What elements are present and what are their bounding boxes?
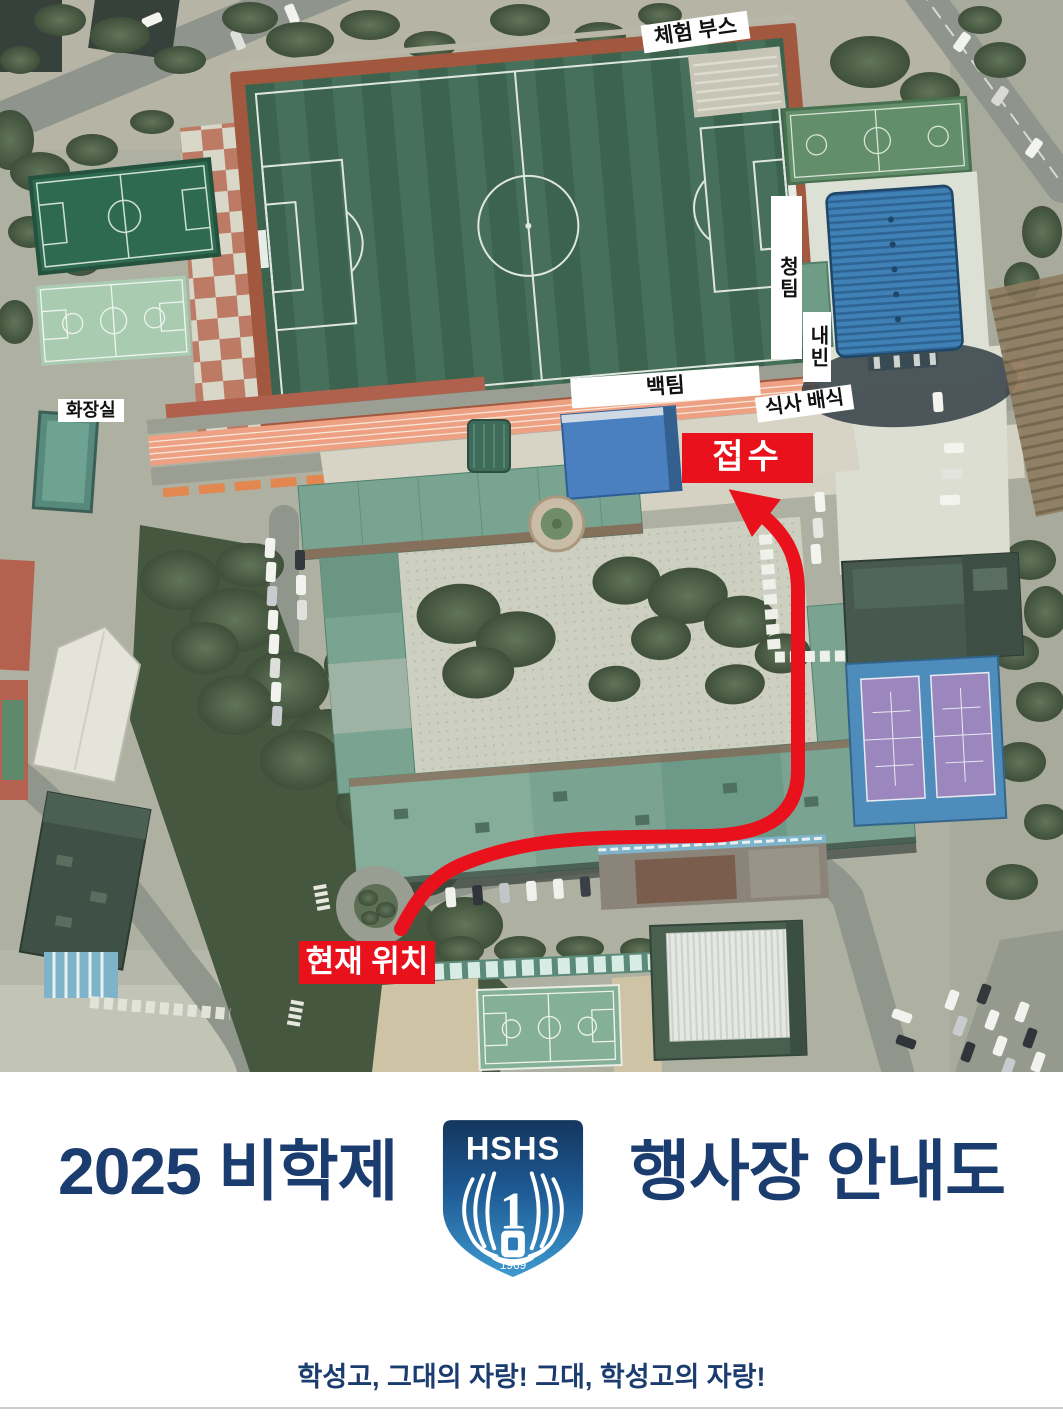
logo-founding-year: 1969: [500, 1258, 527, 1272]
red-track-left: [0, 559, 35, 671]
title-venue-guide: 행사장 안내도: [629, 1138, 1005, 1204]
campus-aerial-map: 체험 부스 청팀 내빈 백팀 식사 배식 접수 현재 위치 화장실: [0, 0, 1063, 1072]
sand-ground: [372, 978, 482, 1072]
futsal-court-small: [30, 159, 219, 273]
water-tank: [468, 420, 510, 472]
label-current-location: 현재 위치: [299, 941, 435, 984]
school-slogan: 학성고, 그대의 자랑! 그대, 학성고의 자랑!: [0, 1355, 1063, 1394]
restroom-structure: [33, 412, 98, 512]
title-year-festival: 2025 비학제: [58, 1138, 397, 1204]
label-blue-team: 청팀: [771, 196, 802, 359]
basketball-court-upper: [36, 276, 191, 366]
school-logo: HSHS 1 1969: [439, 1118, 587, 1280]
gym-annex-building: [842, 553, 1023, 664]
label-restroom: 화장실: [58, 399, 124, 422]
bottom-divider: [0, 1407, 1063, 1409]
futsal-court-gym: [784, 97, 971, 184]
title-row: 2025 비학제 HSHS: [0, 1124, 1063, 1280]
stairs: [688, 46, 786, 117]
aerial-photo-illustration: [0, 0, 1063, 1072]
label-reception: 접수: [682, 433, 813, 483]
logo-acronym: HSHS: [466, 1131, 560, 1167]
storage-building: [598, 834, 829, 910]
label-guests: 내빈: [803, 312, 831, 382]
white-ribbed-building: [650, 921, 807, 1060]
basketball-court-lower: [477, 985, 622, 1070]
tennis-courts: [846, 656, 1006, 826]
poster-footer: 2025 비학제 HSHS: [0, 1072, 1063, 1418]
event-guide-poster: 체험 부스 청팀 내빈 백팀 식사 배식 접수 현재 위치 화장실 2025 비…: [0, 0, 1063, 1418]
